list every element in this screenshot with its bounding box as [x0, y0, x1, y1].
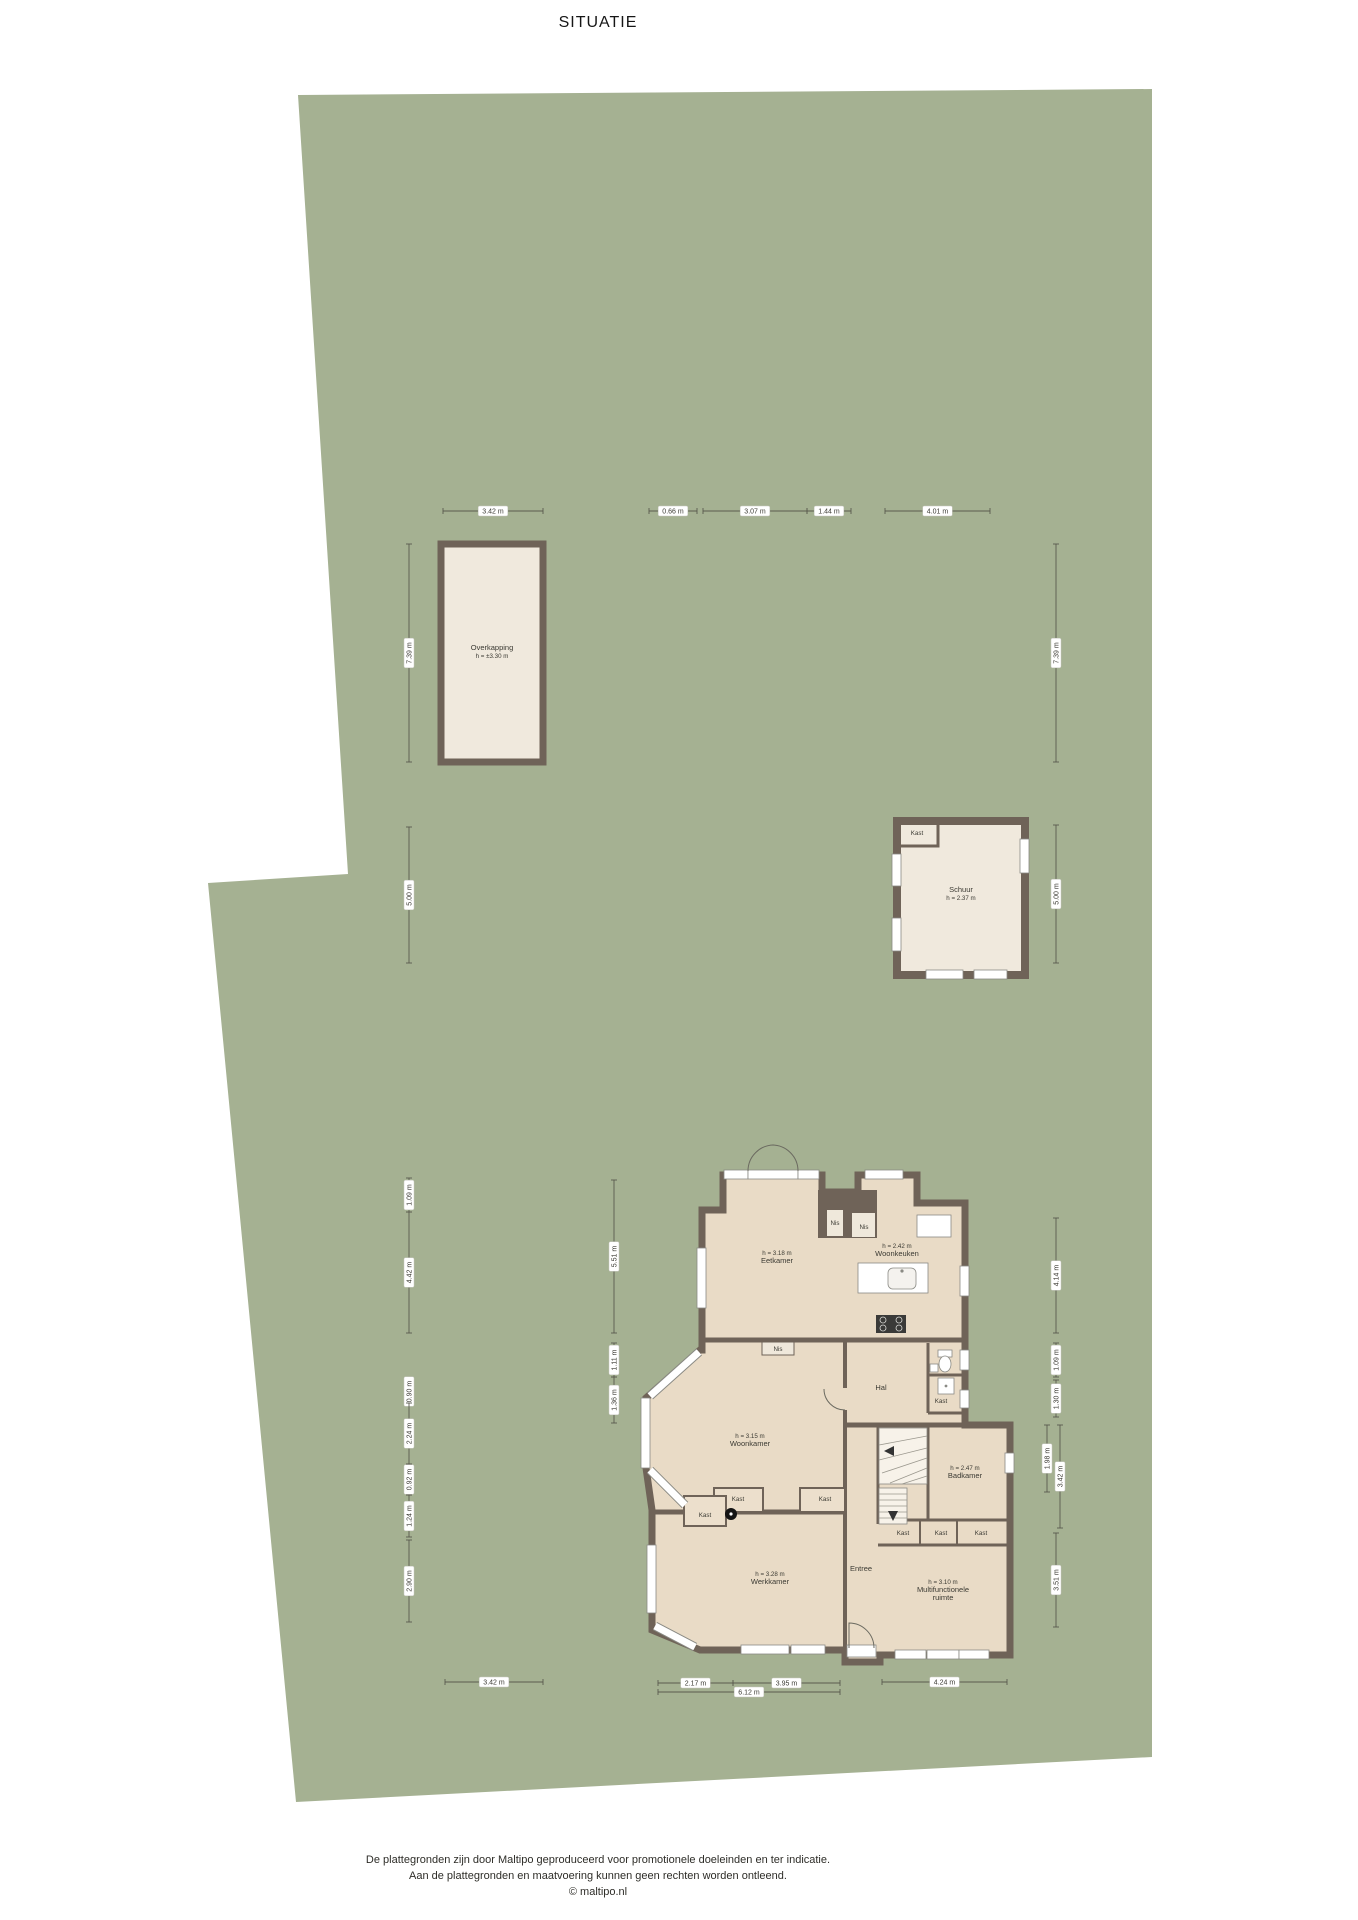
dimension-value: 3.42 m	[482, 509, 504, 516]
dimension-value: 0.66 m	[662, 509, 684, 516]
window-east-wc	[960, 1350, 969, 1370]
dimension-value: 1.09 m	[407, 1184, 414, 1206]
situatie-plan-page: SITUATIE	[0, 0, 1358, 1920]
dimension-value: 6.12 m	[738, 1690, 760, 1697]
footer-disclaimer: De plattegronden zijn door Maltipo gepro…	[218, 1852, 978, 1900]
window-east-kast	[960, 1390, 969, 1408]
dimension-value: 1.24 m	[407, 1505, 414, 1527]
room-label-hal: Hal	[875, 1383, 887, 1392]
room-label-schuur: Schuurh = 2.37 m	[946, 885, 975, 902]
label-kast: Kast	[935, 1530, 948, 1537]
dimension-value: 5.51 m	[612, 1246, 619, 1268]
schuur-window-west-1	[892, 854, 901, 886]
label-kast: Kast	[897, 1530, 910, 1537]
dimension: 1.11 m	[609, 1343, 619, 1377]
dimension: 0.90 m	[404, 1377, 414, 1407]
schuur-window-west-2	[892, 918, 901, 951]
label-nis: Nis	[831, 1220, 840, 1227]
window-east-keuken	[960, 1266, 969, 1296]
dimension: 1.09 m	[404, 1178, 414, 1212]
label-kast: Kast	[911, 830, 924, 837]
dimension: 1.30 m	[1051, 1380, 1061, 1417]
window-south-multi-2	[927, 1650, 959, 1659]
label-kast: Kast	[699, 1512, 712, 1519]
dimension-value: 7.39 m	[407, 642, 414, 664]
window-south-multi-1	[895, 1650, 926, 1659]
window-east-badkamer	[1005, 1453, 1014, 1473]
footer-line-1: De plattegronden zijn door Maltipo gepro…	[218, 1852, 978, 1868]
dimension-value: 1.30 m	[1054, 1388, 1061, 1410]
dimension-value: 7.39 m	[1054, 642, 1061, 664]
dimension-value: 1.44 m	[818, 509, 840, 516]
room-label-eetkamer: h = 3.18 mEetkamer	[761, 1250, 794, 1265]
room-label-overkapping: Overkappingh = ±3.30 m	[471, 643, 514, 660]
dimension-value: 3.07 m	[744, 509, 766, 516]
dimension-value: 1.98 m	[1045, 1448, 1052, 1470]
dimension-value: 2.90 m	[407, 1570, 414, 1592]
dimension-value: 2.17 m	[685, 1681, 707, 1688]
label-nis: Nis	[860, 1224, 869, 1231]
window-north-kitchen	[865, 1170, 903, 1179]
dimension-value: 5.00 m	[1054, 883, 1061, 905]
window-west-eetkamer	[697, 1248, 706, 1308]
label-kast: Kast	[819, 1496, 832, 1503]
schuur-door-south-2	[974, 970, 1007, 979]
room-label-woonkamer: h = 3.15 mWoonkamer	[730, 1433, 771, 1448]
footer-line-2: Aan de plattegronden en maatvoering kunn…	[218, 1868, 978, 1884]
dimension-value: 1.11 m	[612, 1349, 619, 1370]
front-door	[847, 1645, 876, 1657]
dimension: 1.09 m	[1051, 1343, 1061, 1377]
window-north-2	[798, 1170, 819, 1179]
dimension-value: 1.36 m	[612, 1389, 619, 1411]
sink-faucet	[900, 1269, 903, 1272]
window-west-werkkamer	[647, 1545, 656, 1613]
footer-copyright: © maltipo.nl	[218, 1884, 978, 1900]
dimension-value: 0.90 m	[407, 1381, 414, 1403]
door-north-opening	[748, 1170, 798, 1179]
dimension-value: 3.42 m	[483, 1680, 505, 1687]
kitchen-counter	[917, 1215, 951, 1237]
dimension-value: 4.42 m	[407, 1262, 414, 1284]
shower	[938, 1378, 954, 1394]
dimension: 1.24 m	[404, 1495, 414, 1537]
schuur-window-east	[1020, 839, 1029, 873]
kast-box-3	[684, 1496, 726, 1526]
dimension-value: 4.14 m	[1054, 1265, 1061, 1287]
toilet	[938, 1350, 952, 1372]
window-bay-west	[641, 1398, 650, 1468]
label-kast: Kast	[732, 1496, 745, 1503]
label-kast: Kast	[975, 1530, 988, 1537]
dimension-value: 4.24 m	[934, 1680, 956, 1687]
dimension-value: 0.92 m	[407, 1469, 414, 1491]
window-south-multi-3	[959, 1650, 989, 1659]
label-nis: Nis	[774, 1346, 783, 1353]
room-label-entree: Entree	[850, 1564, 872, 1573]
dimension-value: 2.24 m	[407, 1423, 414, 1445]
dimension-value: 1.09 m	[1054, 1349, 1061, 1371]
site-plan-drawing: 3.42 m0.66 m3.07 m1.44 m4.01 m3.42 m2.17…	[0, 0, 1358, 1920]
dimension-value: 5.00 m	[407, 884, 414, 906]
dimension-value: 3.95 m	[776, 1681, 798, 1688]
wc-sink	[930, 1364, 938, 1372]
dimension-value: 4.01 m	[927, 509, 949, 516]
window-north-1	[724, 1170, 748, 1179]
room-label-badkamer: h = 2.47 mBadkamer	[948, 1465, 983, 1480]
wood-stove	[725, 1508, 737, 1520]
schuur-door-south-1	[926, 970, 963, 979]
cooktop	[876, 1315, 906, 1333]
window-south-werk-2	[791, 1645, 825, 1654]
dimension-value: 3.51 m	[1054, 1569, 1061, 1591]
dimension: 0.92 m	[404, 1464, 414, 1495]
label-kast: Kast	[935, 1398, 948, 1405]
dimension-value: 3.42 m	[1058, 1466, 1065, 1488]
room-label-werkkamer: h = 3.28 mWerkkamer	[751, 1571, 790, 1586]
window-south-werk-1	[741, 1645, 789, 1654]
